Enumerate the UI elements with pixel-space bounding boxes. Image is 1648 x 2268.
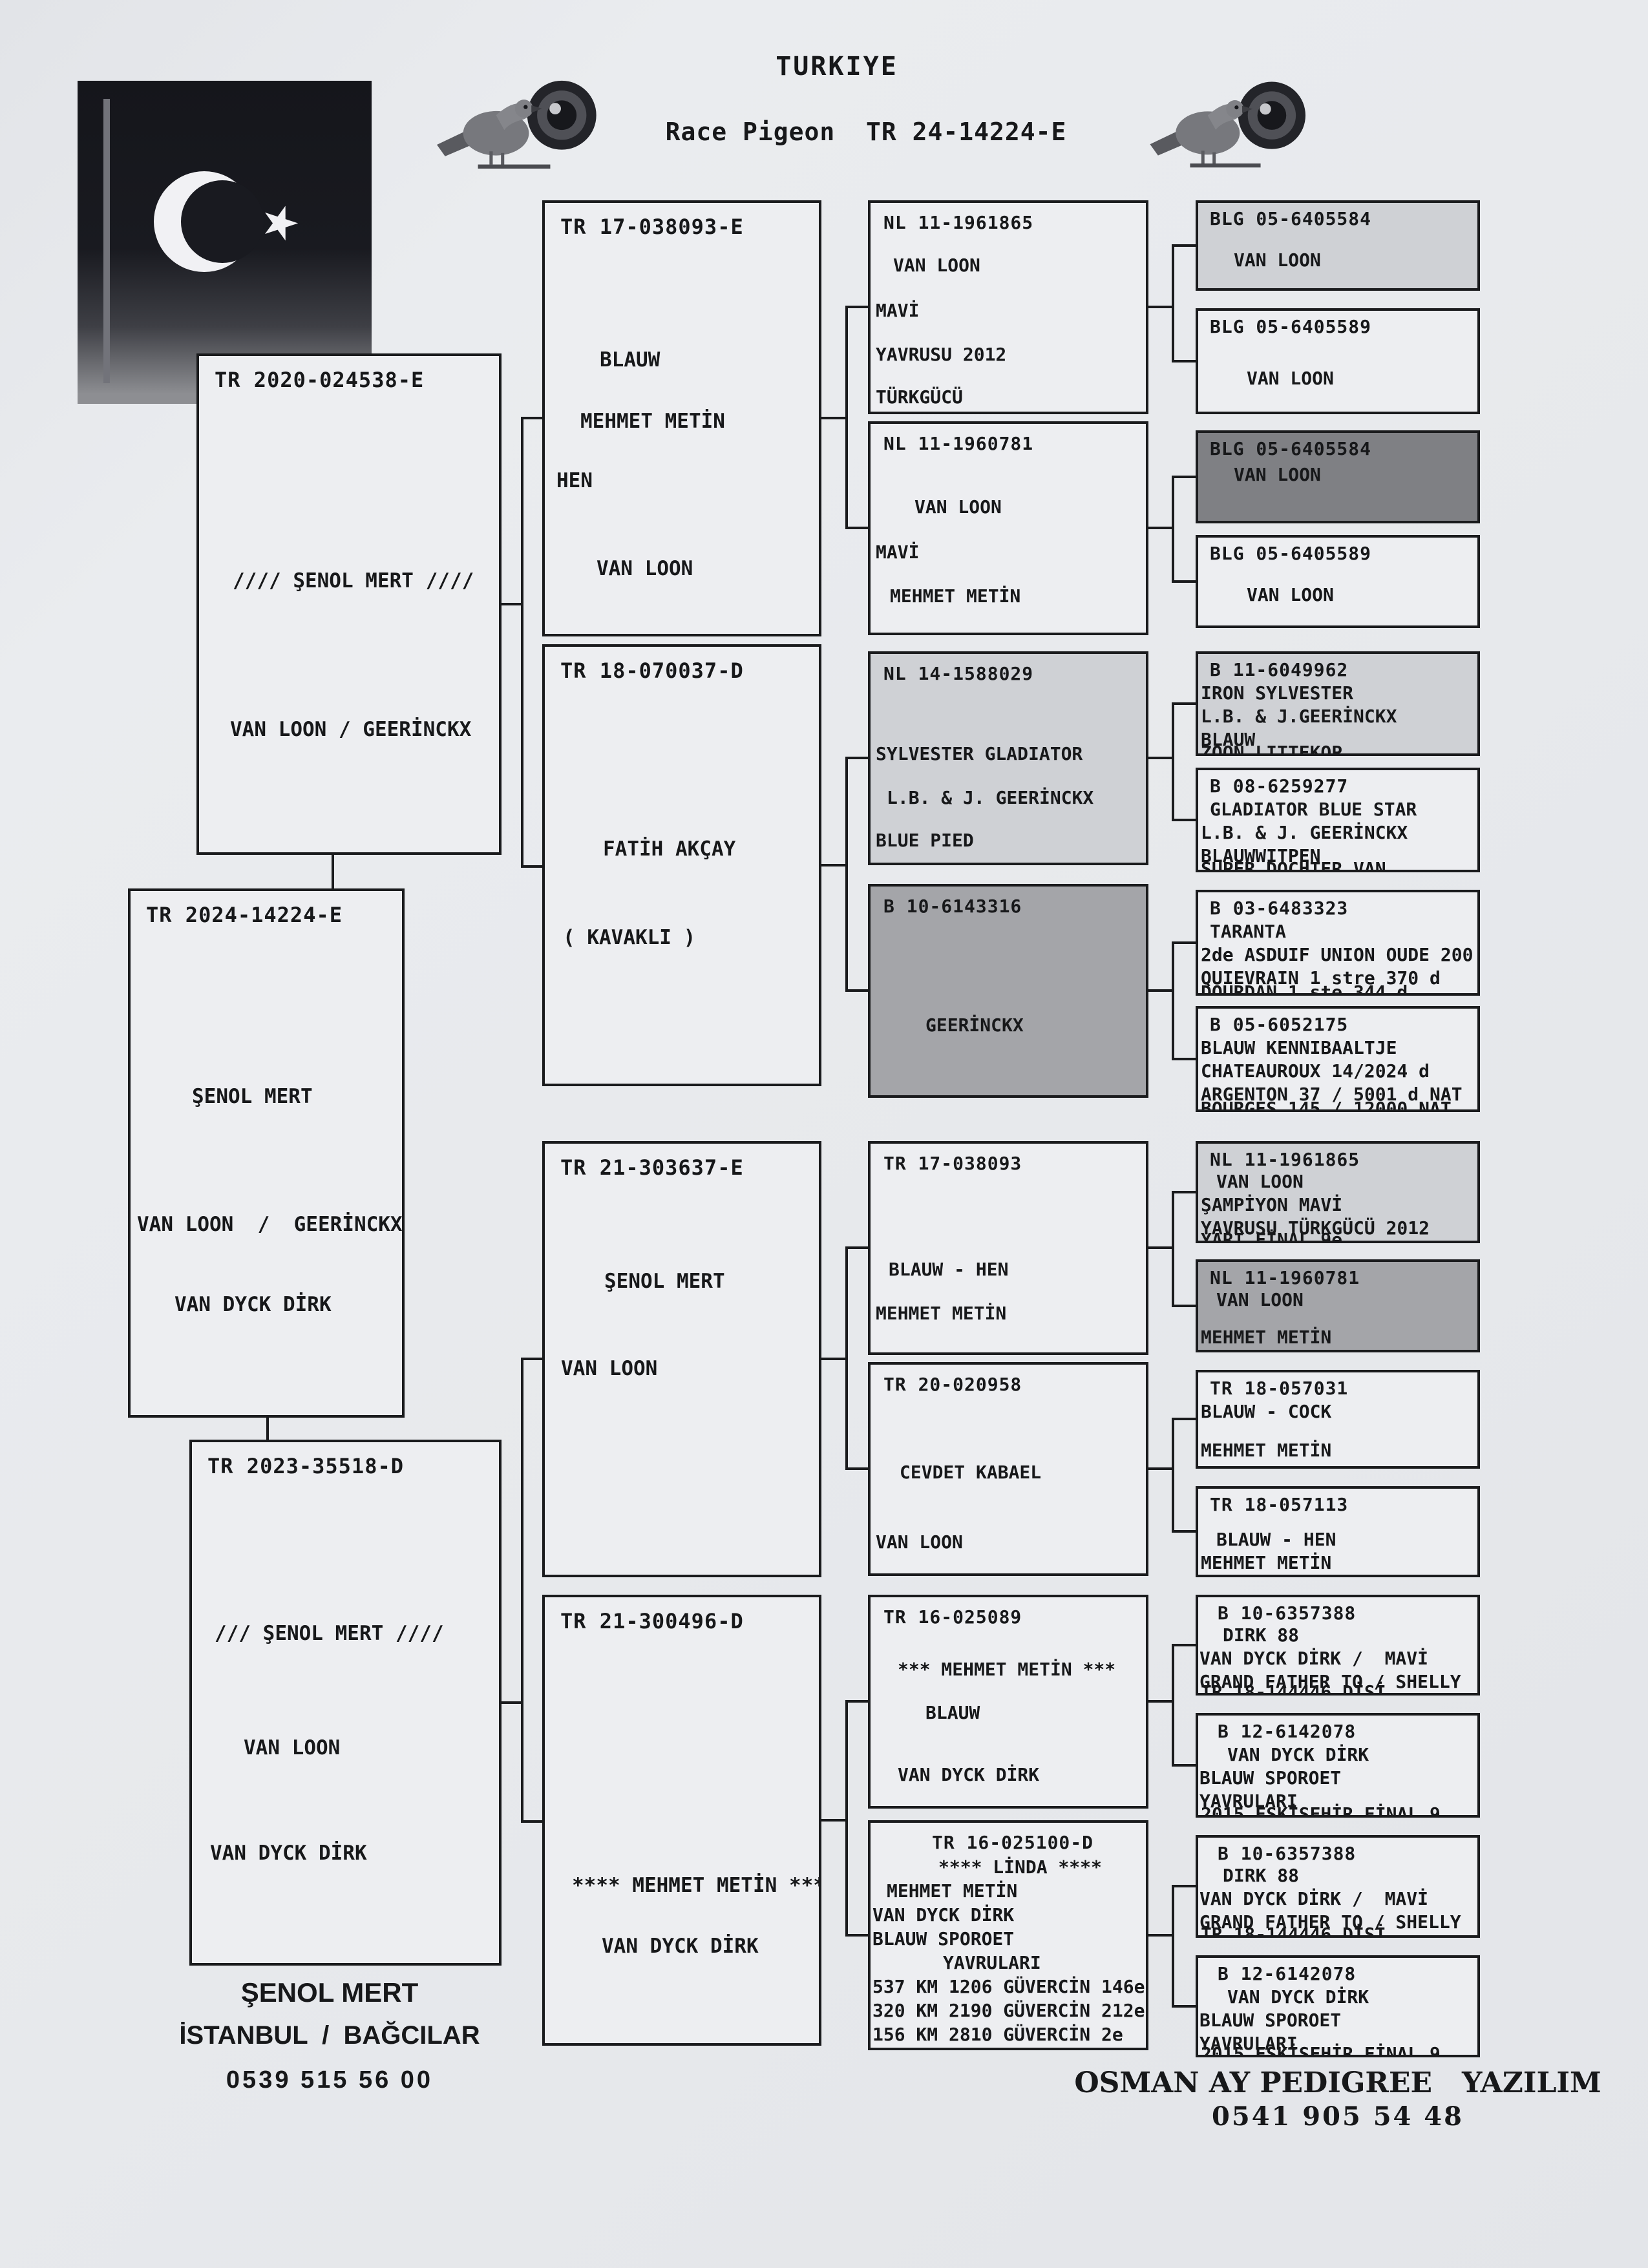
pedigree-line: DIRK 88 <box>1223 1624 1299 1646</box>
connector-line <box>821 1358 845 1360</box>
connector-line <box>821 1819 845 1822</box>
pigeon-icon <box>432 66 597 184</box>
pedigree-line-truncated: DOURDAN 1 ste 344 d <box>1201 982 1408 996</box>
connector-line <box>1148 757 1172 759</box>
ring-number: TR 16-025089 <box>883 1606 1022 1628</box>
pedigree-line: CEVDET KABAEL <box>900 1462 1041 1483</box>
pedigree-line-truncated: 2015 ESKİŞEHİR FİNAL 9 <box>1201 2043 1441 2057</box>
pedigree-box-grandparent: TR 17-038093-E BLAUW MEHMET METİN HEN VA… <box>542 200 821 636</box>
pedigree-line: VAN LOON <box>914 496 1002 518</box>
pedigree-line: MEHMET METİN <box>890 585 1020 607</box>
pedigree-line: VAN DYCK DİRK <box>1227 1986 1369 2008</box>
pedigree-line: CHATEAUROUX 14/2024 d <box>1201 1060 1430 1082</box>
ring-number: TR 21-303637-E <box>560 1155 744 1180</box>
connector-line <box>1148 1700 1172 1703</box>
connector-line <box>1172 941 1196 944</box>
pedigree-line: VAN DYCK DİRK <box>1227 1744 1369 1765</box>
pedigree-line: YAVRULARI <box>943 1952 1041 1973</box>
pedigree-line: MEHMET METİN <box>1201 1327 1331 1348</box>
pedigree-box-gg-grandparent: B 12-6142078 VAN DYCK DİRK BLAUW SPOROET… <box>1196 1713 1480 1818</box>
ring-number: B 12-6142078 <box>1218 1721 1356 1742</box>
ring-number: NL 11-1960781 <box>883 433 1033 454</box>
pedigree-line: BLAUW SPOROET <box>1199 2010 1341 2031</box>
pedigree-box-gg-grandparent: B 10-6357388 DIRK 88 VAN DYCK DİRK / MAV… <box>1196 1595 1480 1696</box>
connector-line <box>1172 702 1174 821</box>
pedigree-box-greatgrandparent: TR 16-025100-D **** LİNDA **** MEHMET ME… <box>868 1820 1148 2050</box>
pedigree-line-truncated: BOURGES 145 / 12000 NAT <box>1201 1098 1452 1112</box>
connector-line <box>1148 1467 1172 1470</box>
connector-line <box>1172 244 1196 247</box>
pedigree-line: YAVRUSU 2012 <box>876 344 1006 365</box>
pedigree-line: ŞENOL MERT <box>604 1270 725 1293</box>
connector-line <box>1172 1530 1196 1533</box>
pedigree-line: //// ŞENOL MERT //// <box>233 569 474 593</box>
connector-line <box>1172 244 1174 362</box>
connector-line <box>1172 941 1174 1060</box>
connector-line <box>821 864 845 866</box>
connector-line <box>521 417 542 419</box>
connector-line <box>1148 527 1172 529</box>
connector-line <box>1172 1644 1174 1767</box>
pedigree-line: HEN <box>556 469 593 492</box>
pedigree-line: 156 KM 2810 GÜVERCİN 2e <box>872 2024 1123 2045</box>
pedigree-line: VAN LOON / GEERİNCKX <box>230 718 471 741</box>
pedigree-line: TARANTA <box>1210 921 1286 942</box>
ring-number: NL 11-1960781 <box>1210 1267 1360 1288</box>
connector-line <box>502 1701 521 1704</box>
pedigree-box-dam: TR 2023-35518-D /// ŞENOL MERT //// VAN … <box>189 1440 502 1966</box>
crescent-cutout <box>181 180 264 263</box>
pedigree-line: MEHMET METİN <box>876 1303 1006 1324</box>
ring-number: NL 11-1961865 <box>883 212 1033 233</box>
pedigree-line: VAN LOON <box>1234 249 1321 271</box>
ring-number: B 11-6049962 <box>1210 659 1348 680</box>
pedigree-box-gg-grandparent: B 11-6049962 IRON SYLVESTER L.B. & J.GEE… <box>1196 651 1480 756</box>
connector-line <box>521 865 542 868</box>
pedigree-line: L.B. & J. GEERİNCKX <box>887 787 1093 808</box>
pedigree-line-truncated: TR 18-144446 DİŞİ <box>1201 1681 1386 1696</box>
ring-number: B 10-6143316 <box>883 896 1022 917</box>
ring-number: TR 16-025100-D <box>932 1832 1093 1853</box>
connector-line <box>1148 306 1172 308</box>
pedigree-box-sire: TR 2020-024538-E //// ŞENOL MERT //// VA… <box>196 353 502 855</box>
pedigree-line: BLUE PIED <box>876 830 974 851</box>
pedigree-line: VAN DYCK DİRK <box>602 1935 759 1958</box>
connector-line <box>845 1246 848 1470</box>
pedigree-line: 320 KM 2190 GÜVERCİN 212e <box>872 2000 1145 2021</box>
pedigree-line: BLAUW - COCK <box>1201 1401 1331 1422</box>
connector-line <box>845 757 848 992</box>
connector-line <box>266 1418 269 1440</box>
connector-line <box>845 1700 868 1703</box>
connector-line <box>845 1700 848 1937</box>
pedigree-line: TÜRKGÜCÜ <box>876 386 963 408</box>
pedigree-box-gg-grandparent: B 10-6357388 DIRK 88 VAN DYCK DİRK / MAV… <box>1196 1835 1480 1938</box>
connector-line <box>521 1358 523 1823</box>
pedigree-box-gg-grandparent: B 08-6259277 GLADIATOR BLUE STAR L.B. & … <box>1196 768 1480 872</box>
pedigree-line: ( KAVAKLI ) <box>563 926 695 949</box>
pedigree-line: BLAUW <box>925 1702 980 1723</box>
connector-line <box>1172 819 1196 821</box>
pedigree-line: VAN LOON <box>561 1357 657 1380</box>
pedigree-box-gg-grandparent: BLG 05-6405584 VAN LOON <box>1196 430 1480 523</box>
pedigree-line: BLAUW SPOROET <box>872 1928 1014 1949</box>
pedigree-line: VAN LOON <box>876 1531 963 1553</box>
connector-line <box>845 306 848 529</box>
connector-line <box>845 1467 868 1470</box>
pedigree-box-gg-grandparent: NL 11-1961865 VAN LOON ŞAMPİYON MAVİ YAV… <box>1196 1141 1480 1243</box>
connector-line <box>1172 1418 1174 1533</box>
connector-line <box>1172 1191 1174 1307</box>
pedigree-box-gg-grandparent: TR 18-057031 BLAUW - COCK MEHMET METİN <box>1196 1370 1480 1469</box>
pedigree-box-greatgrandparent: B 10-6143316 GEERİNCKX <box>868 884 1148 1098</box>
pedigree-line: GLADIATOR BLUE STAR <box>1210 799 1417 820</box>
pedigree-line: MEHMET METİN <box>887 1880 1017 1902</box>
pedigree-box-gg-grandparent: TR 18-057113 BLAUW - HEN MEHMET METİN <box>1196 1486 1480 1577</box>
ring-number: B 10-6357388 <box>1218 1843 1356 1864</box>
pedigree-line: BLAUW KENNIBAALTJE <box>1201 1037 1397 1058</box>
connector-line <box>1172 1885 1196 1887</box>
pedigree-box-greatgrandparent: TR 16-025089 *** MEHMET METİN *** BLAUW … <box>868 1595 1148 1809</box>
connector-line <box>1172 580 1196 583</box>
pigeon-icon <box>1145 66 1305 184</box>
pedigree-line-truncated: YARI FİNAL 9e <box>1201 1229 1342 1243</box>
ring-number: BLG 05-6405584 <box>1210 208 1371 229</box>
pedigree-line-truncated: ZOON LITTEKOP <box>1201 742 1342 756</box>
pedigree-box-gg-grandparent: BLG 05-6405589 VAN LOON <box>1196 535 1480 628</box>
pedigree-line: MAVİ <box>876 300 919 321</box>
software-credit: OSMAN AY PEDIGREE YAZILIM <box>1047 2066 1629 2099</box>
connector-line <box>845 527 868 529</box>
pedigree-line-truncated: 2015 ESKİŞEHİR FİNAL 9 <box>1201 1803 1441 1818</box>
connector-line <box>502 603 521 605</box>
ring-number: B 05-6052175 <box>1210 1014 1348 1035</box>
pedigree-line: VAN LOON <box>597 557 693 580</box>
connector-line <box>1172 1644 1196 1646</box>
pedigree-box-greatgrandparent: NL 14-1588029 SYLVESTER GLADIATOR L.B. &… <box>868 651 1148 865</box>
ring-number: TR 20-020958 <box>883 1374 1022 1395</box>
connector-line <box>521 1358 542 1360</box>
pedigree-line: VAN DYCK DİRK / MAVİ <box>1199 1648 1428 1669</box>
pedigree-line: /// ŞENOL MERT //// <box>215 1622 444 1645</box>
owner-location: İSTANBUL / BAĞCILAR <box>103 2021 556 2050</box>
pedigree-line: VAN LOON <box>1247 368 1334 389</box>
pedigree-line: VAN LOON / GEERİNCKX <box>137 1213 403 1236</box>
ring-number: TR 2024-14224-E <box>146 903 343 927</box>
pedigree-line: MAVİ <box>876 541 919 563</box>
pedigree-line: BLAUW SPOROET <box>1199 1767 1341 1789</box>
pedigree-box-gg-grandparent: B 03-6483323 TARANTA 2de ASDUIF UNION OU… <box>1196 890 1480 996</box>
ring-number: B 10-6357388 <box>1218 1602 1356 1624</box>
pedigree-line: FATİH AKÇAY <box>603 837 735 861</box>
ring-number: TR 18-070037-D <box>560 658 744 683</box>
pedigree-line: ŞAMPİYON MAVİ <box>1201 1194 1342 1215</box>
connector-line <box>1148 989 1172 992</box>
pedigree-document: TURKIYE Race Pigeon TR 24-14224-E ★ <box>0 0 1648 2268</box>
connector-line <box>332 855 334 888</box>
pedigree-line: MEHMET METİN <box>580 410 725 433</box>
ring-number: TR 18-057113 <box>1210 1494 1348 1515</box>
pedigree-line: VAN DYCK DİRK <box>210 1842 367 1865</box>
connector-line <box>845 1934 868 1937</box>
pedigree-line: VAN LOON <box>893 255 980 276</box>
pedigree-line: VAN DYCK DİRK <box>174 1293 332 1316</box>
connector-line <box>1172 2005 1196 2008</box>
ring-number: TR 21-300496-D <box>560 1609 744 1633</box>
pedigree-box-subject: TR 2024-14224-E ŞENOL MERT VAN LOON / GE… <box>128 888 405 1418</box>
connector-line <box>845 757 868 759</box>
pedigree-box-gg-grandparent: NL 11-1960781 VAN LOON MEHMET METİN <box>1196 1259 1480 1352</box>
pedigree-line: **** LİNDA **** <box>938 1856 1102 1878</box>
connector-line <box>821 417 845 419</box>
pedigree-line: MEHMET METİN <box>1201 1552 1331 1573</box>
connector-line <box>1172 702 1196 705</box>
document-title: TURKIYE <box>698 52 976 81</box>
pedigree-box-greatgrandparent: TR 20-020958 CEVDET KABAEL VAN LOON <box>868 1362 1148 1576</box>
pedigree-line: L.B. & J. GEERİNCKX <box>1201 822 1408 843</box>
pedigree-box-greatgrandparent: NL 11-1960781 VAN LOON MAVİ MEHMET METİN <box>868 421 1148 635</box>
pedigree-line: 2de ASDUIF UNION OUDE 200 <box>1201 944 1473 965</box>
software-phone: 0541 905 54 48 <box>1047 2101 1629 2132</box>
flag-pole <box>103 99 110 383</box>
connector-line <box>1172 1885 1174 2008</box>
pedigree-line: DIRK 88 <box>1223 1865 1299 1886</box>
pedigree-line: MEHMET METİN <box>1201 1440 1331 1461</box>
pedigree-line: BLAUW - HEN <box>1216 1529 1336 1550</box>
connector-line <box>1172 1764 1196 1767</box>
star-icon: ★ <box>253 191 308 253</box>
pedigree-box-greatgrandparent: TR 17-038093 BLAUW - HEN MEHMET METİN <box>868 1141 1148 1355</box>
pedigree-line: VAN LOON <box>1216 1289 1304 1310</box>
connector-line <box>521 417 523 868</box>
pedigree-line: ŞENOL MERT <box>192 1085 313 1108</box>
pedigree-line-truncated: SUPER DOCHTER VAN <box>1201 858 1386 872</box>
pedigree-box-gg-grandparent: BLG 05-6405584 VAN LOON <box>1196 200 1480 291</box>
owner-phone: 0539 515 56 00 <box>149 2066 511 2094</box>
pedigree-line: BLAUW - HEN <box>889 1259 1008 1280</box>
pedigree-box-gg-grandparent: BLG 05-6405589 VAN LOON <box>1196 308 1480 414</box>
connector-line <box>1172 360 1196 362</box>
connector-line <box>1172 1058 1196 1060</box>
pedigree-line: 537 KM 1206 GÜVERCİN 146e <box>872 1976 1145 1997</box>
pedigree-box-grandparent: TR 21-300496-D **** MEHMET METİN **** VA… <box>542 1595 821 2046</box>
connector-line <box>1148 1246 1172 1249</box>
ring-number: BLG 05-6405584 <box>1210 438 1371 459</box>
pedigree-line: VAN LOON <box>1216 1171 1304 1192</box>
pedigree-line: VAN LOON <box>1247 584 1334 605</box>
owner-name: ŞENOL MERT <box>149 1977 511 2008</box>
pedigree-box-grandparent: TR 18-070037-D FATİH AKÇAY ( KAVAKLI ) <box>542 644 821 1086</box>
pedigree-line: SYLVESTER GLADIATOR <box>876 743 1083 764</box>
ring-number: BLG 05-6405589 <box>1210 543 1371 564</box>
pedigree-line: VAN DYCK DİRK <box>872 1904 1014 1926</box>
pedigree-line: VAN LOON <box>244 1736 340 1759</box>
pedigree-line: GEERİNCKX <box>925 1014 1024 1036</box>
ring-number: BLG 05-6405589 <box>1210 316 1371 337</box>
pedigree-line: *** MEHMET METİN *** <box>898 1659 1115 1680</box>
ring-number: B 08-6259277 <box>1210 775 1348 797</box>
pedigree-line: IRON SYLVESTER <box>1201 682 1353 704</box>
connector-line <box>1172 476 1174 583</box>
connector-line <box>1172 1418 1196 1420</box>
connector-line <box>1172 1305 1196 1307</box>
pedigree-box-gg-grandparent: B 12-6142078 VAN DYCK DİRK BLAUW SPOROET… <box>1196 1955 1480 2057</box>
document-subtitle: Race Pigeon TR 24-14224-E <box>646 118 1086 146</box>
connector-line <box>1172 476 1196 478</box>
ring-number: TR 2020-024538-E <box>215 368 424 392</box>
pedigree-line: VAN DYCK DİRK / MAVİ <box>1199 1888 1428 1909</box>
connector-line <box>845 306 868 308</box>
pedigree-line: **** MEHMET METİN **** <box>572 1874 821 1897</box>
pedigree-line: BLAUW <box>600 348 660 372</box>
pedigree-line-truncated: TR 18-144446 DİŞİ <box>1201 1924 1386 1938</box>
connector-line <box>845 989 868 992</box>
ring-number: TR 2023-35518-D <box>207 1454 404 1478</box>
ring-number: TR 17-038093 <box>883 1153 1022 1174</box>
pedigree-box-greatgrandparent: NL 11-1961865 VAN LOON MAVİ YAVRUSU 2012… <box>868 200 1148 414</box>
pedigree-line: VAN LOON <box>1234 464 1321 485</box>
pedigree-box-gg-grandparent: B 05-6052175 BLAUW KENNIBAALTJE CHATEAUR… <box>1196 1006 1480 1112</box>
pedigree-line: VAN DYCK DİRK <box>898 1764 1039 1785</box>
connector-line <box>845 1246 868 1249</box>
connector-line <box>521 1820 542 1823</box>
ring-number: B 03-6483323 <box>1210 898 1348 919</box>
ring-number: B 12-6142078 <box>1218 1963 1356 1984</box>
pedigree-line: L.B. & J.GEERİNCKX <box>1201 706 1397 727</box>
connector-line <box>1172 1191 1196 1193</box>
pedigree-box-grandparent: TR 21-303637-E ŞENOL MERT VAN LOON <box>542 1141 821 1577</box>
ring-number: NL 14-1588029 <box>883 663 1033 684</box>
ring-number: TR 17-038093-E <box>560 215 744 239</box>
ring-number: NL 11-1961865 <box>1210 1149 1360 1170</box>
ring-number: TR 18-057031 <box>1210 1378 1348 1399</box>
connector-line <box>1148 1934 1172 1937</box>
